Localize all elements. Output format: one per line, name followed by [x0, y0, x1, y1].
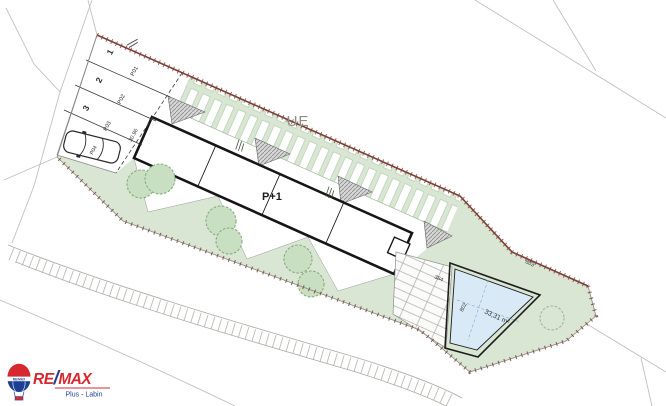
- balloon-ropes: [14, 392, 24, 397]
- balloon-top: [8, 364, 31, 377]
- tiny-annotation: [126, 39, 139, 48]
- building-label: P+1: [262, 191, 282, 203]
- tree: [284, 245, 312, 273]
- site-plan-canvas: 1 2 3 P01 P02 P03 P04 30.96 P+1 UE 803 8…: [0, 0, 666, 406]
- remax-wordmark-re: RE: [33, 371, 55, 388]
- tree: [145, 164, 175, 194]
- remax-logo: RE/MAX RE/MAX Plus - Labin: [8, 364, 111, 400]
- road-line: [0, 300, 235, 406]
- road-line: [475, 0, 666, 118]
- tree: [216, 228, 242, 254]
- road-line: [6, 8, 60, 92]
- road-line: [88, 0, 97, 35]
- site-plan-drawing: 1 2 3 P01 P02 P03 P04 30.96 P+1 UE 803 8…: [0, 0, 666, 406]
- remax-balloon-icon: RE/MAX: [8, 364, 31, 400]
- remax-office-name: Plus - Labin: [66, 392, 103, 399]
- road-line: [553, 0, 596, 71]
- remax-wordmark: RE/MAX: [33, 368, 93, 389]
- street-label: UE: [287, 113, 310, 130]
- remax-wordmark-max: MAX: [58, 371, 93, 388]
- balloon-brand-text: RE/MAX: [13, 378, 26, 382]
- annotation-marks: [126, 39, 139, 48]
- road-line: [641, 358, 652, 406]
- road-line: [4, 157, 57, 180]
- balloon-basket: [15, 397, 23, 401]
